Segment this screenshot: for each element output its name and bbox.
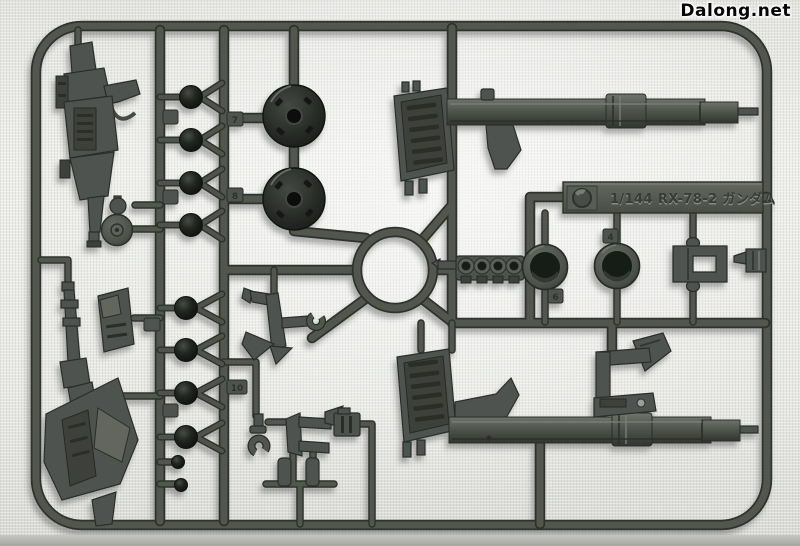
dome-joint-upper <box>263 85 325 147</box>
photo-background: { "watermark": { "text": "Dalong.net" },… <box>0 0 800 546</box>
photo-bottom-band <box>0 535 800 546</box>
disc-cap <box>102 196 133 246</box>
small-peg <box>172 456 185 469</box>
anchor-hook <box>242 288 325 364</box>
bazooka-half-lower <box>397 349 758 457</box>
barrel-ring-cylinder-left <box>523 245 568 290</box>
svg-text:4: 4 <box>607 233 613 243</box>
barrel-collar <box>612 413 652 446</box>
svg-text:8: 8 <box>232 192 238 202</box>
runner-frame-group: 1/144 RX-78-2 ガンダム 1/144 RX-78-2 ガンダム <box>36 26 776 526</box>
barrel-ring-cylinder-right <box>595 244 640 289</box>
box-stock-part <box>98 288 134 352</box>
dome-joint-lower <box>263 168 325 230</box>
svg-text:6: 6 <box>552 293 558 303</box>
edge-block-part <box>734 249 766 272</box>
svg-text:7: 7 <box>232 116 238 126</box>
muzzle <box>700 102 738 123</box>
watermark-text: Dalong.net <box>680 1 791 21</box>
carry-handle-hook <box>594 333 671 417</box>
u-bracket <box>673 238 727 292</box>
grip-fin <box>455 378 519 418</box>
ring-strip <box>432 256 524 283</box>
gate-tag-8: 8 <box>227 188 243 202</box>
barrel-collar <box>606 94 646 128</box>
small-peg <box>175 479 188 492</box>
side-box-part <box>334 408 360 436</box>
gate-tag-7: 7 <box>227 112 243 126</box>
gate-tag-6: 6 <box>548 289 563 303</box>
plate-text: 1/144 RX-78-2 ガンダム <box>610 191 776 207</box>
grip-fin <box>486 125 521 169</box>
gate-tag-4: 4 <box>603 229 618 243</box>
ball-joints <box>172 86 203 492</box>
svg-text:10: 10 <box>231 384 244 394</box>
rifle-weapon-top-left <box>56 42 140 247</box>
gate-tag-10: 10 <box>227 380 247 394</box>
label-plate: 1/144 RX-78-2 ガンダム 1/144 RX-78-2 ガンダム <box>563 182 776 213</box>
muzzle <box>702 420 740 441</box>
sprue-photo: 1/144 RX-78-2 ガンダム 1/144 RX-78-2 ガンダム <box>0 0 800 546</box>
